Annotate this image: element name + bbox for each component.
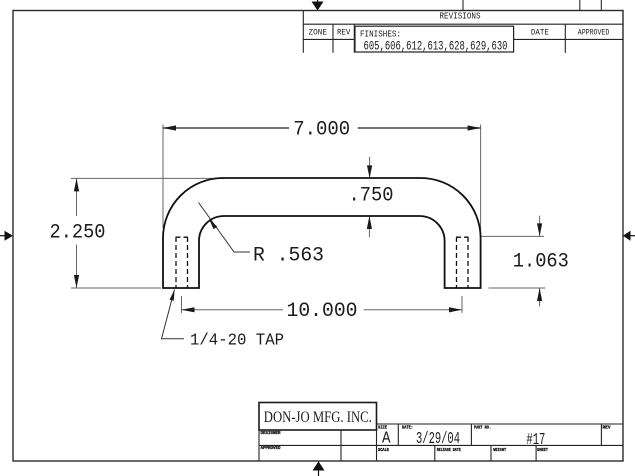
svg-text:R .563: R .563 <box>253 244 324 267</box>
svg-text:APPROVED: APPROVED <box>261 446 281 451</box>
svg-text:SCALE: SCALE <box>378 448 389 453</box>
svg-text:1/4-20 TAP: 1/4-20 TAP <box>190 332 284 351</box>
svg-text:.750: .750 <box>349 185 394 208</box>
svg-text:WEIGHT: WEIGHT <box>493 448 506 453</box>
svg-text:A: A <box>382 429 391 448</box>
svg-text:1.063: 1.063 <box>513 250 569 273</box>
svg-text:DATE:: DATE: <box>402 426 413 431</box>
svg-text:SHEET: SHEET <box>537 448 548 453</box>
svg-text:10.000: 10.000 <box>287 300 358 323</box>
svg-text:RELEASE DATE: RELEASE DATE <box>437 448 461 453</box>
svg-text:ZONE: ZONE <box>308 29 327 38</box>
svg-text:3/29/04: 3/29/04 <box>416 430 460 449</box>
svg-text:APPROVED: APPROVED <box>578 28 610 37</box>
svg-text:REV: REV <box>603 426 611 431</box>
svg-text:PART NO.: PART NO. <box>474 426 491 431</box>
svg-text:DON-JO MFG. INC.: DON-JO MFG. INC. <box>264 409 372 426</box>
svg-text:7.000: 7.000 <box>293 119 350 142</box>
svg-text:605,606,612,613,628,629,630: 605,606,612,613,628,629,630 <box>364 39 508 54</box>
svg-text:DATE: DATE <box>531 28 549 37</box>
svg-text:REV: REV <box>337 29 351 38</box>
svg-text:REVISIONS: REVISIONS <box>440 12 481 22</box>
svg-text:2.250: 2.250 <box>50 221 106 244</box>
svg-text:DESIGNER: DESIGNER <box>261 431 281 436</box>
